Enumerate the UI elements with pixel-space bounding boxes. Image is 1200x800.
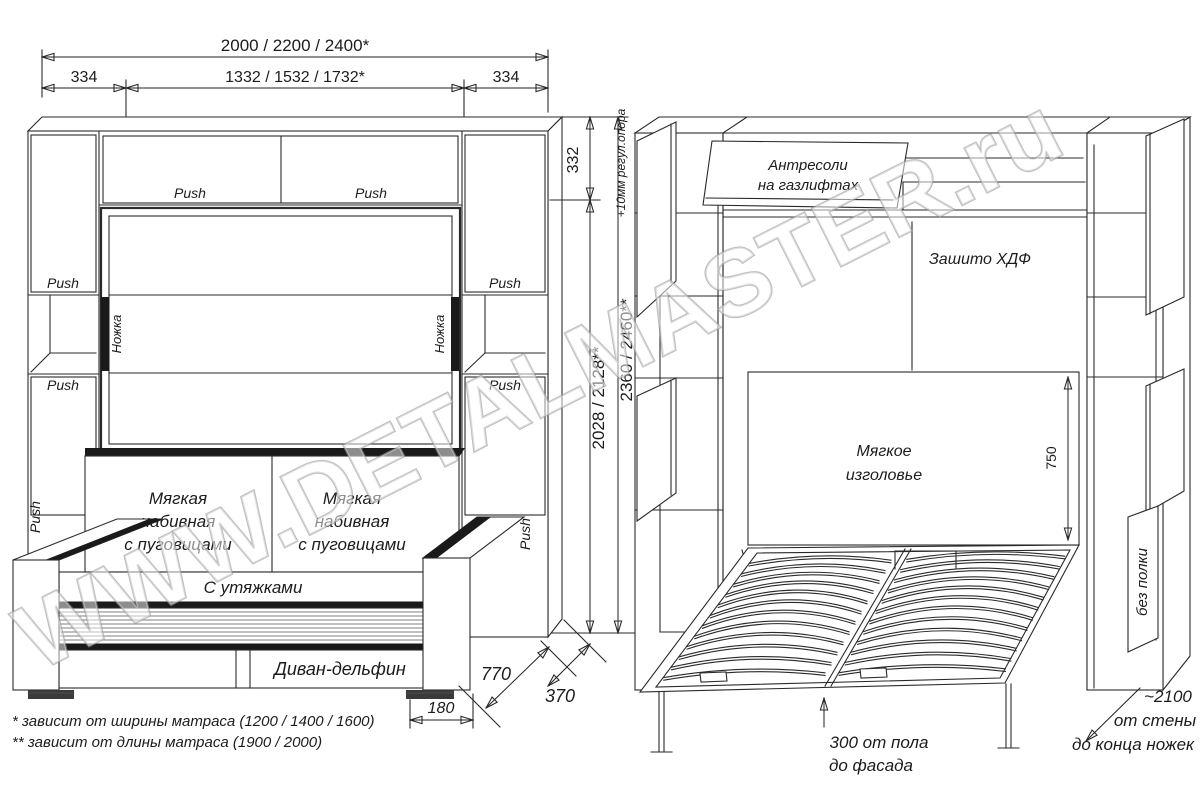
sofa-foot-left [28, 690, 74, 699]
antresol-label-1: Антресоли [767, 157, 848, 174]
dim-sofa-depth: 770 [481, 664, 511, 684]
dim-side-right: 334 [493, 69, 520, 86]
open-door-right-bottom [1146, 369, 1184, 513]
open-right-tower: без полки [1087, 117, 1190, 690]
dim-height-note: +10мм регул.опора [614, 108, 628, 217]
headboard-label-2: изголовье [846, 467, 922, 484]
leg-label-left: Ножка [109, 315, 124, 354]
wall-to-legs-label-2: от стены [1114, 711, 1197, 730]
dimension-top: 2000 / 2200 / 2400* 334 1332 / 1532 / 17… [42, 36, 548, 116]
dim-side-left: 334 [71, 69, 98, 86]
dim-headboard-height: 750 [1043, 446, 1059, 470]
no-shelf-label: без полки [1134, 547, 1151, 616]
headboard-label-1: Мягкое [856, 443, 911, 460]
back-panel-label: Зашито ХДФ [929, 251, 1031, 268]
wall-bed-sofa-diagram: 2000 / 2200 / 2400* 334 1332 / 1532 / 17… [0, 0, 1200, 800]
wall-to-legs-label-1: ~2100 [1144, 687, 1192, 706]
footnote-1: * зависит от ширины матраса (1200 / 1400… [12, 713, 375, 730]
bed-leg-bar-left [101, 297, 109, 371]
dim-inner-width: 1332 / 1532 / 1732* [225, 69, 365, 86]
footnote-2: ** зависит от длины матраса (1900 / 2000… [12, 734, 322, 751]
footnotes: * зависит от ширины матраса (1200 / 1400… [12, 713, 375, 751]
dim-total-width: 2000 / 2200 / 2400* [221, 36, 370, 55]
dim-top-section: 332 [565, 147, 582, 174]
armrest-right [423, 558, 470, 690]
leg-label-right: Ножка [432, 315, 447, 354]
sofa-foot-right [406, 690, 454, 699]
open-door-right-top [1146, 119, 1184, 315]
push-label-tower-left-low: Push [27, 501, 43, 533]
push-label-bridge-left: Push [174, 185, 206, 201]
push-label-tower-left-top: Push [47, 275, 79, 291]
push-label-tower-left-mid: Push [47, 377, 79, 393]
sofa-base-label: Диван-дельфин [272, 659, 406, 679]
wall-to-legs-label-3: до конца ножек [1072, 735, 1195, 754]
push-label-bridge-right: Push [355, 185, 387, 201]
technical-drawing-page: 2000 / 2200 / 2400* 334 1332 / 1532 / 17… [0, 0, 1200, 800]
dim-foot-inset: 180 [428, 700, 455, 717]
dim-back-depth: 370 [545, 686, 575, 706]
bed-leg-bar-right [451, 297, 459, 371]
push-label-tower-right-low: Push [517, 518, 533, 550]
floor-clearance-label-1: 300 от пола [830, 733, 929, 752]
push-label-tower-right-top: Push [489, 275, 521, 291]
open-view-dimensions: 300 от пола до фасада ~2100 от стены до … [824, 687, 1197, 775]
floor-clearance-label-2: до фасада [829, 756, 913, 775]
headboard [748, 372, 1079, 545]
